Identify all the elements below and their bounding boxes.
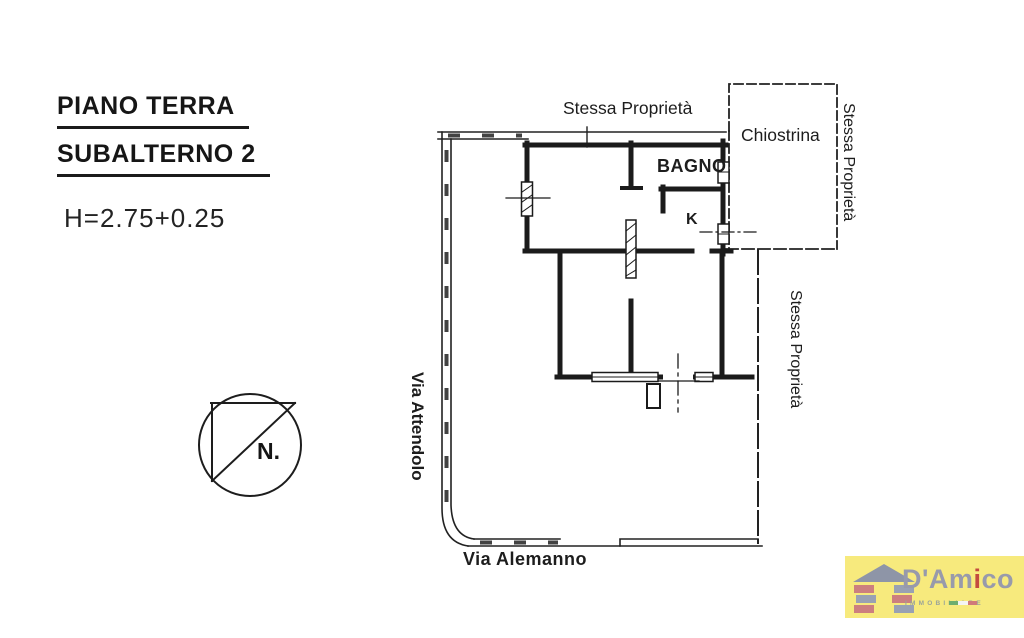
label-adjacent-property-right-lower: Stessa Proprietà bbox=[786, 290, 804, 408]
compass-north-arrow bbox=[212, 403, 295, 481]
agency-logo: D'Amico IMMOBILIARE bbox=[845, 556, 1024, 618]
agency-name: D'Amico bbox=[902, 564, 1014, 595]
ceiling-height-note: H=2.75+0.25 bbox=[64, 203, 225, 234]
chiostrina-walls bbox=[726, 84, 837, 249]
label-street-via-attendolo: Via Attendolo bbox=[407, 372, 427, 481]
plan-title-unit: SUBALTERNO 2 bbox=[57, 140, 270, 177]
label-kitchen: K bbox=[686, 211, 698, 229]
window-center bbox=[626, 220, 636, 278]
label-adjacent-property-top: Stessa Proprietà bbox=[563, 98, 692, 119]
label-bathroom: BAGNO bbox=[657, 156, 727, 177]
label-adjacent-property-right-upper: Stessa Proprietà bbox=[839, 103, 857, 221]
label-chiostrina: Chiostrina bbox=[741, 125, 820, 146]
exterior-step bbox=[647, 384, 660, 408]
floor-plan-page: { "page": { "background": "#ffffff", "in… bbox=[0, 0, 1024, 638]
agency-name-prefix: D'Am bbox=[902, 564, 973, 594]
plan-title-floor: PIANO TERRA bbox=[57, 92, 249, 129]
compass: N. bbox=[199, 394, 301, 496]
label-street-via-alemanno: Via Alemanno bbox=[463, 549, 587, 570]
compass-north-label: N. bbox=[257, 438, 280, 464]
agency-name-suffix: co bbox=[981, 564, 1014, 594]
italian-flag-icon bbox=[949, 601, 977, 605]
